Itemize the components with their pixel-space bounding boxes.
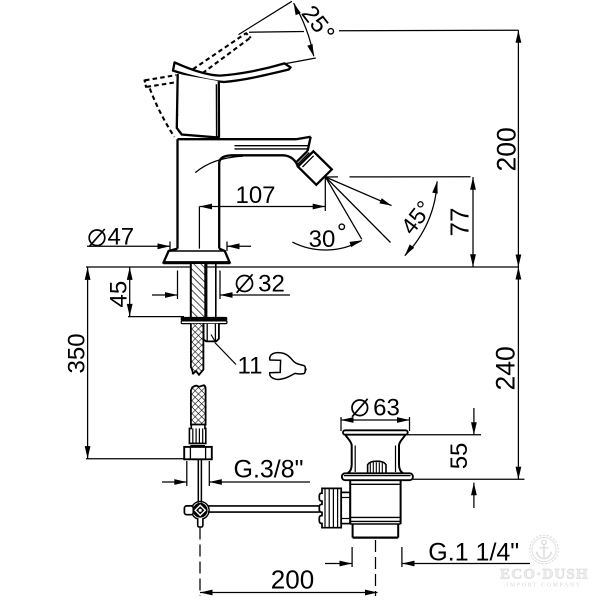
svg-text:32: 32 (258, 271, 285, 298)
svg-text:200: 200 (492, 127, 522, 171)
svg-text:30: 30 (309, 226, 336, 253)
svg-text:107: 107 (235, 182, 275, 209)
svg-text:200: 200 (271, 565, 314, 595)
svg-text:240: 240 (491, 346, 521, 390)
svg-text:11: 11 (238, 353, 263, 380)
svg-text:77: 77 (445, 208, 475, 237)
svg-text:G.1 1/4": G.1 1/4" (428, 539, 519, 567)
svg-text:63: 63 (373, 395, 400, 422)
svg-text:47: 47 (107, 224, 134, 251)
svg-text:350: 350 (64, 333, 91, 373)
svg-text:45: 45 (106, 281, 133, 308)
svg-text:55: 55 (446, 443, 473, 470)
svg-text:IMPORT COMPANY: IMPORT COMPANY (506, 583, 582, 589)
svg-text:G.3/8": G.3/8" (234, 456, 304, 484)
svg-text:ECO·DUSH: ECO·DUSH (500, 567, 589, 583)
